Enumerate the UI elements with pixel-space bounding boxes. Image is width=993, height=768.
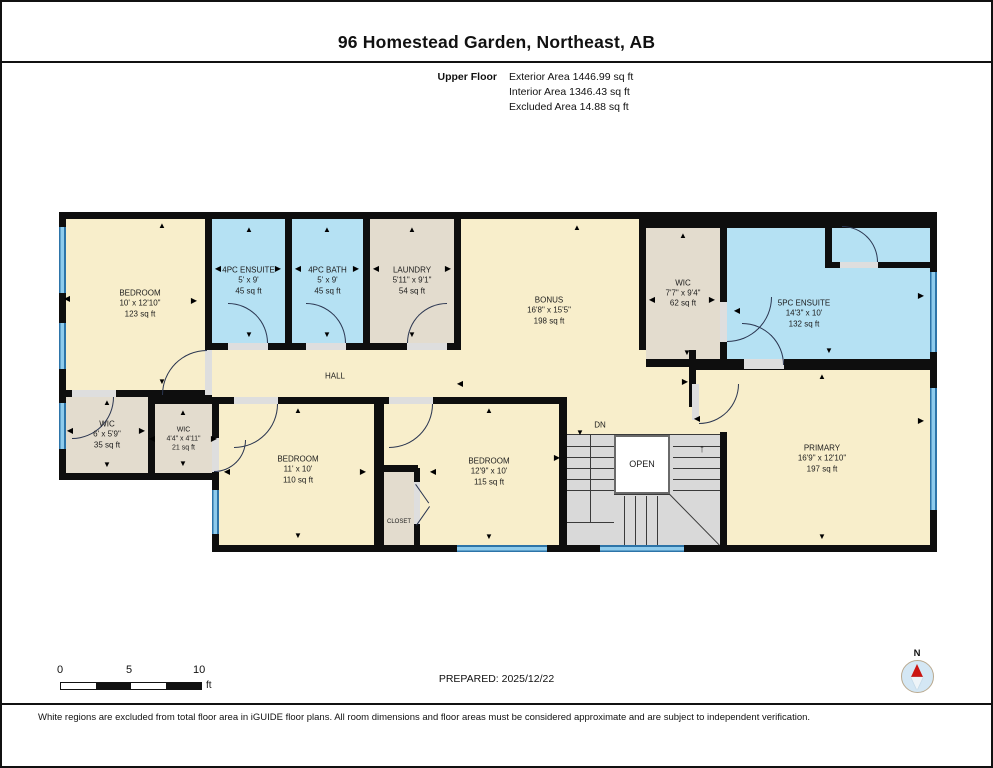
room-label-line: 16'9" x 12'10" xyxy=(798,454,846,464)
room-label-line: 7'7" x 9'4" xyxy=(666,288,701,298)
floor-plan: BEDROOM10' x 12'10"123 sq ft4PC ENSUITE5… xyxy=(2,2,991,766)
dimension-arrow-up-29: ▲ xyxy=(179,409,187,417)
hall-label: HALL xyxy=(325,372,345,381)
dimension-arrow-right-35: ▶ xyxy=(360,468,366,476)
dimension-arrow-up-8: ▲ xyxy=(323,226,331,234)
room-label-line: 14'3" x 10' xyxy=(778,309,830,319)
window-4 xyxy=(457,545,547,552)
dimension-arrow-down-40: ▼ xyxy=(485,533,493,541)
room-label-line: 132 sq ft xyxy=(778,319,830,329)
disclaimer-text: White regions are excluded from total fl… xyxy=(38,712,810,723)
compass: N xyxy=(898,648,936,693)
room-label-line: PRIMARY xyxy=(798,443,846,453)
door-opening-6 xyxy=(840,262,878,268)
room-label-line: 5'11" x 9'1" xyxy=(393,276,432,286)
window-0 xyxy=(59,227,66,293)
room-label-line: 115 sq ft xyxy=(468,477,509,487)
room-label-closet: CLOSET xyxy=(387,519,411,527)
prepared-date: PREPARED: 2025/12/22 xyxy=(2,673,991,685)
room-label-bedroom-3: BEDROOM12'9" x 10'115 sq ft xyxy=(468,456,509,487)
room-label-line: 110 sq ft xyxy=(277,475,318,485)
dimension-arrow-down-28: ▼ xyxy=(103,461,111,469)
dimension-arrow-down-7: ▼ xyxy=(245,331,253,339)
room-label-line: CLOSET xyxy=(387,519,411,527)
room-label-line: 4PC BATH xyxy=(308,265,347,275)
room-label-line: 4PC ENSUITE xyxy=(222,265,274,275)
dimension-arrow-down-21: ▼ xyxy=(683,349,691,357)
dimension-arrow-left-38: ◀ xyxy=(430,468,436,476)
room-label-line: 6' x 5'9" xyxy=(93,430,121,440)
door-opening-3 xyxy=(407,343,447,350)
dimension-arrow-left-34: ◀ xyxy=(224,468,230,476)
stairs-up-arrow: ↑ xyxy=(699,443,705,455)
room-label-line: 62 sq ft xyxy=(666,299,701,309)
door-opening-2 xyxy=(306,343,346,350)
dimension-arrow-left-9: ◀ xyxy=(295,265,301,273)
dimension-arrow-right-23: ▶ xyxy=(918,292,924,300)
room-closet xyxy=(384,472,414,545)
plan-line-6 xyxy=(673,446,720,447)
room-label-line: WIC xyxy=(666,278,701,288)
dimension-arrow-up-0: ▲ xyxy=(158,222,166,230)
dimension-arrow-right-43: ▶ xyxy=(682,378,688,386)
window-2 xyxy=(59,403,66,449)
dimension-arrow-left-30: ◀ xyxy=(149,435,155,443)
room-hall-left xyxy=(212,350,646,397)
room-label-line: BEDROOM xyxy=(468,456,509,466)
plan-line-13 xyxy=(646,496,647,545)
room-label-line: WIC xyxy=(167,425,201,434)
room-label-line: 54 sq ft xyxy=(393,286,432,296)
dimension-arrow-right-2: ▶ xyxy=(191,297,197,305)
footer-divider xyxy=(2,703,991,705)
plan-line-14 xyxy=(657,496,658,545)
room-label-line: 5' x 9' xyxy=(222,276,274,286)
plan-line-7 xyxy=(673,457,720,458)
door-opening-8 xyxy=(72,390,116,397)
room-label-bedroom-2: BEDROOM11' x 10'110 sq ft xyxy=(277,454,318,485)
dimension-arrow-right-31: ▶ xyxy=(211,435,217,443)
room-label-line: LAUNDRY xyxy=(393,265,432,275)
dimension-arrow-down-45: ▼ xyxy=(818,533,826,541)
plan-line-9 xyxy=(673,479,720,480)
room-label-ensuite-4pc: 4PC ENSUITE5' x 9'45 sq ft xyxy=(222,265,274,296)
dimension-arrow-right-44: ▶ xyxy=(918,417,924,425)
room-label-line: 12'9" x 10' xyxy=(468,467,509,477)
dimension-arrow-right-27: ▶ xyxy=(139,427,145,435)
door-opening-4 xyxy=(720,302,727,342)
room-label-line: 21 sq ft xyxy=(167,443,201,452)
dimension-arrow-down-46: ▼ xyxy=(576,429,584,437)
door-opening-1 xyxy=(228,343,268,350)
dimension-arrow-right-39: ▶ xyxy=(554,454,560,462)
door-opening-10 xyxy=(389,397,433,404)
window-1 xyxy=(59,323,66,369)
room-label-line: BEDROOM xyxy=(277,454,318,464)
dimension-arrow-down-36: ▼ xyxy=(294,532,302,540)
dimension-arrow-down-32: ▼ xyxy=(179,460,187,468)
room-label-line: 11' x 10' xyxy=(277,465,318,475)
window-7 xyxy=(930,388,937,510)
room-label-line: 123 sq ft xyxy=(119,309,160,319)
window-5 xyxy=(600,545,684,552)
window-3 xyxy=(212,490,219,534)
room-label-line: 35 sq ft xyxy=(93,440,121,450)
dimension-arrow-up-37: ▲ xyxy=(485,407,493,415)
dimension-arrow-up-16: ▲ xyxy=(573,224,581,232)
room-label-ensuite-5pc: 5PC ENSUITE14'3" x 10'132 sq ft xyxy=(778,298,830,329)
floorplan-page: 96 Homestead Garden, Northeast, AB Upper… xyxy=(0,0,993,768)
dimension-arrow-down-15: ▼ xyxy=(408,331,416,339)
dimension-arrow-left-26: ◀ xyxy=(67,427,73,435)
dimension-arrow-left-17: ◀ xyxy=(457,380,463,388)
wall-segment-2 xyxy=(380,465,418,472)
room-label-line: 5' x 9' xyxy=(308,276,347,286)
dimension-arrow-up-4: ▲ xyxy=(245,226,253,234)
dimension-arrow-left-5: ◀ xyxy=(215,265,221,273)
room-label-line: 4'4" x 4'11" xyxy=(167,434,201,443)
plan-line-10 xyxy=(673,490,720,491)
compass-rose-icon xyxy=(901,660,934,693)
dimension-arrow-up-41: ▲ xyxy=(818,373,826,381)
dimension-arrow-left-13: ◀ xyxy=(373,265,379,273)
dimension-arrow-up-33: ▲ xyxy=(294,407,302,415)
dimension-arrow-down-3: ▼ xyxy=(158,378,166,386)
room-label-line: BEDROOM xyxy=(119,288,160,298)
window-6 xyxy=(930,272,937,352)
room-label-line: 197 sq ft xyxy=(798,464,846,474)
dimension-arrow-up-12: ▲ xyxy=(408,226,416,234)
room-label-wic-upper: WIC7'7" x 9'4"62 sq ft xyxy=(666,278,701,309)
room-label-wic-6: WIC6' x 5'9"35 sq ft xyxy=(93,419,121,450)
plan-line-17 xyxy=(590,435,591,522)
plan-line-8 xyxy=(673,468,720,469)
room-label-line: 45 sq ft xyxy=(308,286,347,296)
room-label-bath-4pc: 4PC BATH5' x 9'45 sq ft xyxy=(308,265,347,296)
wall-segment-5 xyxy=(720,432,727,545)
compass-north-label: N xyxy=(898,648,936,659)
plan-line-16 xyxy=(567,522,614,523)
dn-label: DN xyxy=(594,421,606,430)
room-label-line: 5PC ENSUITE xyxy=(778,298,830,308)
room-label-wic-44: WIC4'4" x 4'11"21 sq ft xyxy=(167,425,201,452)
dimension-arrow-up-18: ▲ xyxy=(679,232,687,240)
room-label-line: WIC xyxy=(93,419,121,429)
plan-line-12 xyxy=(635,496,636,545)
dimension-arrow-right-10: ▶ xyxy=(353,265,359,273)
room-label-primary: PRIMARY16'9" x 12'10"197 sq ft xyxy=(798,443,846,474)
room-label-line: 45 sq ft xyxy=(222,286,274,296)
dimension-arrow-right-20: ▶ xyxy=(709,296,715,304)
dimension-arrow-left-42: ◀ xyxy=(694,415,700,423)
dimension-arrow-down-11: ▼ xyxy=(323,331,331,339)
room-label-line: 10' x 12'10" xyxy=(119,299,160,309)
room-label-line: 198 sq ft xyxy=(527,316,571,326)
plan-line-11 xyxy=(624,496,625,545)
room-label-line: BONUS xyxy=(527,295,571,305)
compass-needle-south xyxy=(911,677,923,690)
compass-needle-north xyxy=(911,664,923,677)
dimension-arrow-up-25: ▲ xyxy=(103,399,111,407)
dimension-arrow-right-14: ▶ xyxy=(445,265,451,273)
dimension-arrow-left-19: ◀ xyxy=(649,296,655,304)
door-opening-9 xyxy=(234,397,278,404)
room-label-laundry: LAUNDRY5'11" x 9'1"54 sq ft xyxy=(393,265,432,296)
dimension-arrow-left-1: ◀ xyxy=(64,295,70,303)
dimension-arrow-down-24: ▼ xyxy=(825,347,833,355)
dimension-arrow-right-6: ▶ xyxy=(275,265,281,273)
room-label-bonus: BONUS16'8" x 15'5"198 sq ft xyxy=(527,295,571,326)
room-label-line: 16'8" x 15'5" xyxy=(527,306,571,316)
plan-line-15 xyxy=(614,494,670,495)
dimension-arrow-left-22: ◀ xyxy=(734,307,740,315)
open-label: OPEN xyxy=(629,459,655,469)
room-label-bedroom-1: BEDROOM10' x 12'10"123 sq ft xyxy=(119,288,160,319)
